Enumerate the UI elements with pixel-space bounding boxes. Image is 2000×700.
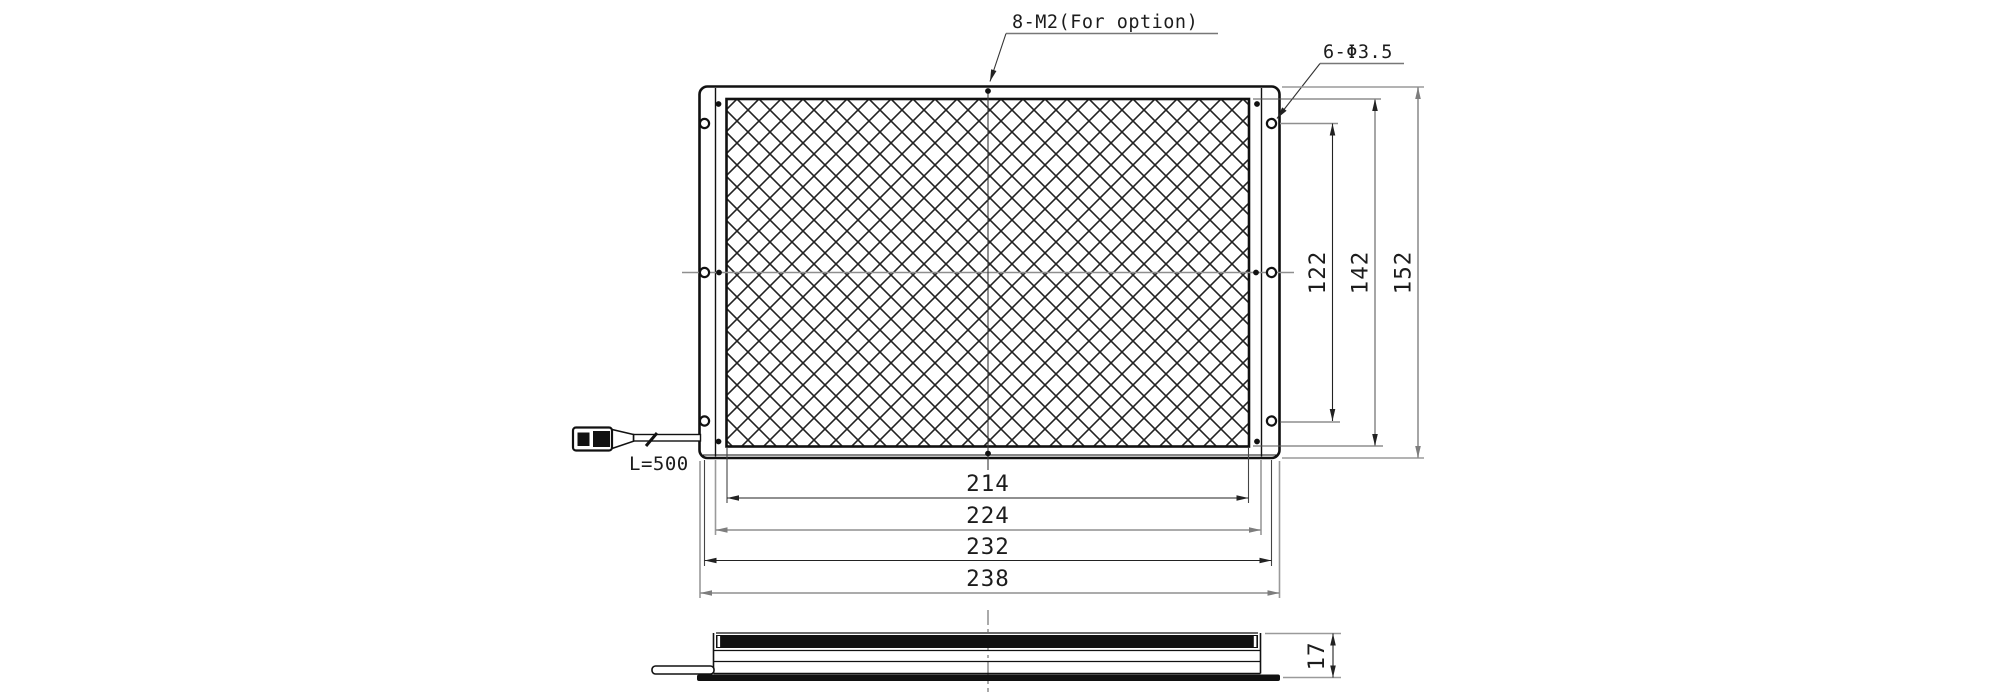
hole-top-right bbox=[1267, 119, 1276, 128]
m2-top-left bbox=[716, 101, 722, 107]
side-cable-tab bbox=[652, 666, 714, 674]
cable-length-label: L=500 bbox=[629, 453, 689, 475]
dim-value-overall-width: 238 bbox=[966, 566, 1010, 592]
connector-rear-block bbox=[593, 431, 610, 447]
dim-value-overall-height: 152 bbox=[1391, 251, 1417, 295]
m2-bottom-center bbox=[985, 451, 991, 457]
dim-value-emitting-width: 214 bbox=[966, 471, 1010, 497]
side-band-right-notch bbox=[1254, 636, 1257, 647]
flat-cable bbox=[634, 435, 701, 442]
front-view bbox=[682, 87, 1294, 471]
hole-bottom-right bbox=[1267, 416, 1276, 425]
side-body-dark-band bbox=[716, 635, 1258, 648]
m2-bottom-right bbox=[1254, 439, 1260, 445]
hole-bottom-left bbox=[700, 416, 709, 425]
dim-value-hole-pitch-height: 122 bbox=[1305, 251, 1331, 295]
m2-mid-left bbox=[716, 270, 722, 276]
dim-value-hole-pitch-width: 232 bbox=[966, 534, 1010, 560]
dim-value-thickness: 17 bbox=[1304, 641, 1330, 670]
strain-relief bbox=[612, 430, 634, 449]
hole-mid-right bbox=[1267, 268, 1276, 277]
callout-leader bbox=[1277, 64, 1320, 119]
side-mounting-plate bbox=[697, 675, 1280, 682]
technical-drawing-canvas: L=500 8-M2(For option) 6-Φ3.5 214 224 23… bbox=[0, 0, 2000, 700]
callout-screws: 8-M2(For option) bbox=[990, 12, 1218, 82]
panel-light-drawing: L=500 8-M2(For option) 6-Φ3.5 214 224 23… bbox=[0, 0, 2000, 700]
m2-mid-right bbox=[1253, 270, 1259, 276]
callout-holes: 6-Φ3.5 bbox=[1277, 42, 1404, 119]
screw-callout-label: 8-M2(For option) bbox=[1012, 12, 1198, 33]
m2-top-center bbox=[985, 88, 991, 94]
connector-front-block bbox=[578, 433, 590, 447]
m2-bottom-left bbox=[716, 439, 722, 445]
m2-top-right bbox=[1254, 101, 1260, 107]
hole-top-left bbox=[700, 119, 709, 128]
cable-assembly: L=500 bbox=[573, 428, 701, 476]
hole-mid-left bbox=[700, 268, 709, 277]
dim-value-body-width: 224 bbox=[966, 503, 1010, 529]
dim-17: 17 bbox=[1265, 634, 1341, 678]
callout-leader bbox=[990, 34, 1006, 82]
dim-value-emitting-height: 142 bbox=[1348, 251, 1374, 295]
side-band-left-notch bbox=[718, 636, 721, 647]
hole-callout-label: 6-Φ3.5 bbox=[1323, 42, 1393, 63]
side-view bbox=[652, 610, 1280, 692]
